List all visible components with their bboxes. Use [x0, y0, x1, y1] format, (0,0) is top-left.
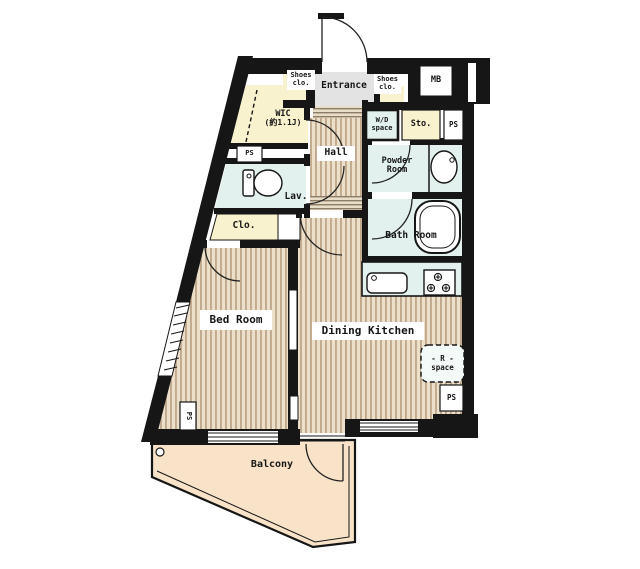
hall-text: Hall: [325, 148, 348, 158]
label-pipe-space-left: PS: [238, 147, 261, 161]
entrance-step: [313, 106, 362, 118]
meter-box-text: MB: [431, 76, 441, 85]
hall-step: [310, 196, 362, 210]
bathroom-text: Bath Room: [385, 231, 436, 241]
dining-kitchen-window: [360, 421, 418, 432]
powder-line2: Room: [387, 166, 407, 175]
bedroom-sliding-door: [289, 290, 297, 350]
floor-plan: Shoes clo. Entrance Shoes clo. MB WIC (約…: [0, 0, 640, 569]
pipe-space-bottom-right-text: PS: [447, 394, 456, 402]
pipe-space-left-text: PS: [245, 150, 253, 158]
balcony-text: Balcony: [251, 460, 293, 471]
lavatory-text: Lav.: [285, 192, 308, 202]
label-balcony: Balcony: [242, 458, 302, 473]
wall-pillar-box: [290, 396, 298, 420]
label-wic: WIC (約1.1J): [256, 103, 310, 135]
label-wd-space: W/D space: [367, 112, 397, 138]
toilet-icon: [243, 170, 282, 196]
shoes-closet-right-line2: clo.: [379, 84, 396, 92]
label-dining-kitchen: Dining Kitchen: [312, 322, 424, 340]
kitchen-sink-icon: [367, 273, 407, 293]
dining-kitchen-text: Dining Kitchen: [322, 325, 415, 337]
balcony-floor: [152, 440, 355, 547]
entrance-text: Entrance: [321, 81, 367, 91]
fridge-line2: space: [431, 364, 454, 372]
closet-text: Clo.: [233, 221, 256, 231]
label-bedroom: Bed Room: [200, 310, 272, 330]
entrance-door-arc: [322, 17, 367, 62]
bedroom-text: Bed Room: [210, 314, 263, 326]
balcony-drain-icon: [156, 448, 164, 456]
wd-line2: space: [371, 125, 392, 133]
label-powder-room: Powder Room: [372, 153, 422, 179]
label-pipe-space-top-right: PS: [445, 115, 462, 135]
pipe-space-bottom-left-text: PS: [184, 412, 192, 420]
label-meter-box: MB: [420, 72, 452, 90]
label-bathroom: Bath Room: [382, 229, 440, 243]
label-shoes-closet-right: Shoes clo.: [374, 74, 401, 94]
label-lavatory: Lav.: [280, 190, 312, 204]
label-fridge-space: - R - space: [422, 348, 463, 379]
bathtub-icon: [415, 201, 460, 253]
bedroom-window: [208, 431, 278, 443]
wic-line2: (約1.1J): [265, 119, 302, 128]
label-pipe-space-bottom-left: PS: [180, 408, 196, 424]
label-closet: Clo.: [226, 219, 262, 234]
right-notch: [468, 63, 476, 102]
washbasin-icon: [431, 151, 457, 183]
shoes-closet-left-line2: clo.: [293, 80, 310, 88]
label-shoes-closet-left: Shoes clo.: [287, 70, 315, 90]
label-pipe-space-bottom-right: PS: [441, 388, 462, 408]
label-storage: Sto.: [403, 115, 439, 135]
pipe-space-top-right-text: PS: [449, 121, 458, 129]
stove-icon: [424, 270, 455, 295]
label-hall: Hall: [317, 146, 355, 161]
corridor-floor: [296, 218, 362, 298]
storage-text: Sto.: [411, 120, 431, 129]
label-entrance: Entrance: [316, 80, 372, 92]
